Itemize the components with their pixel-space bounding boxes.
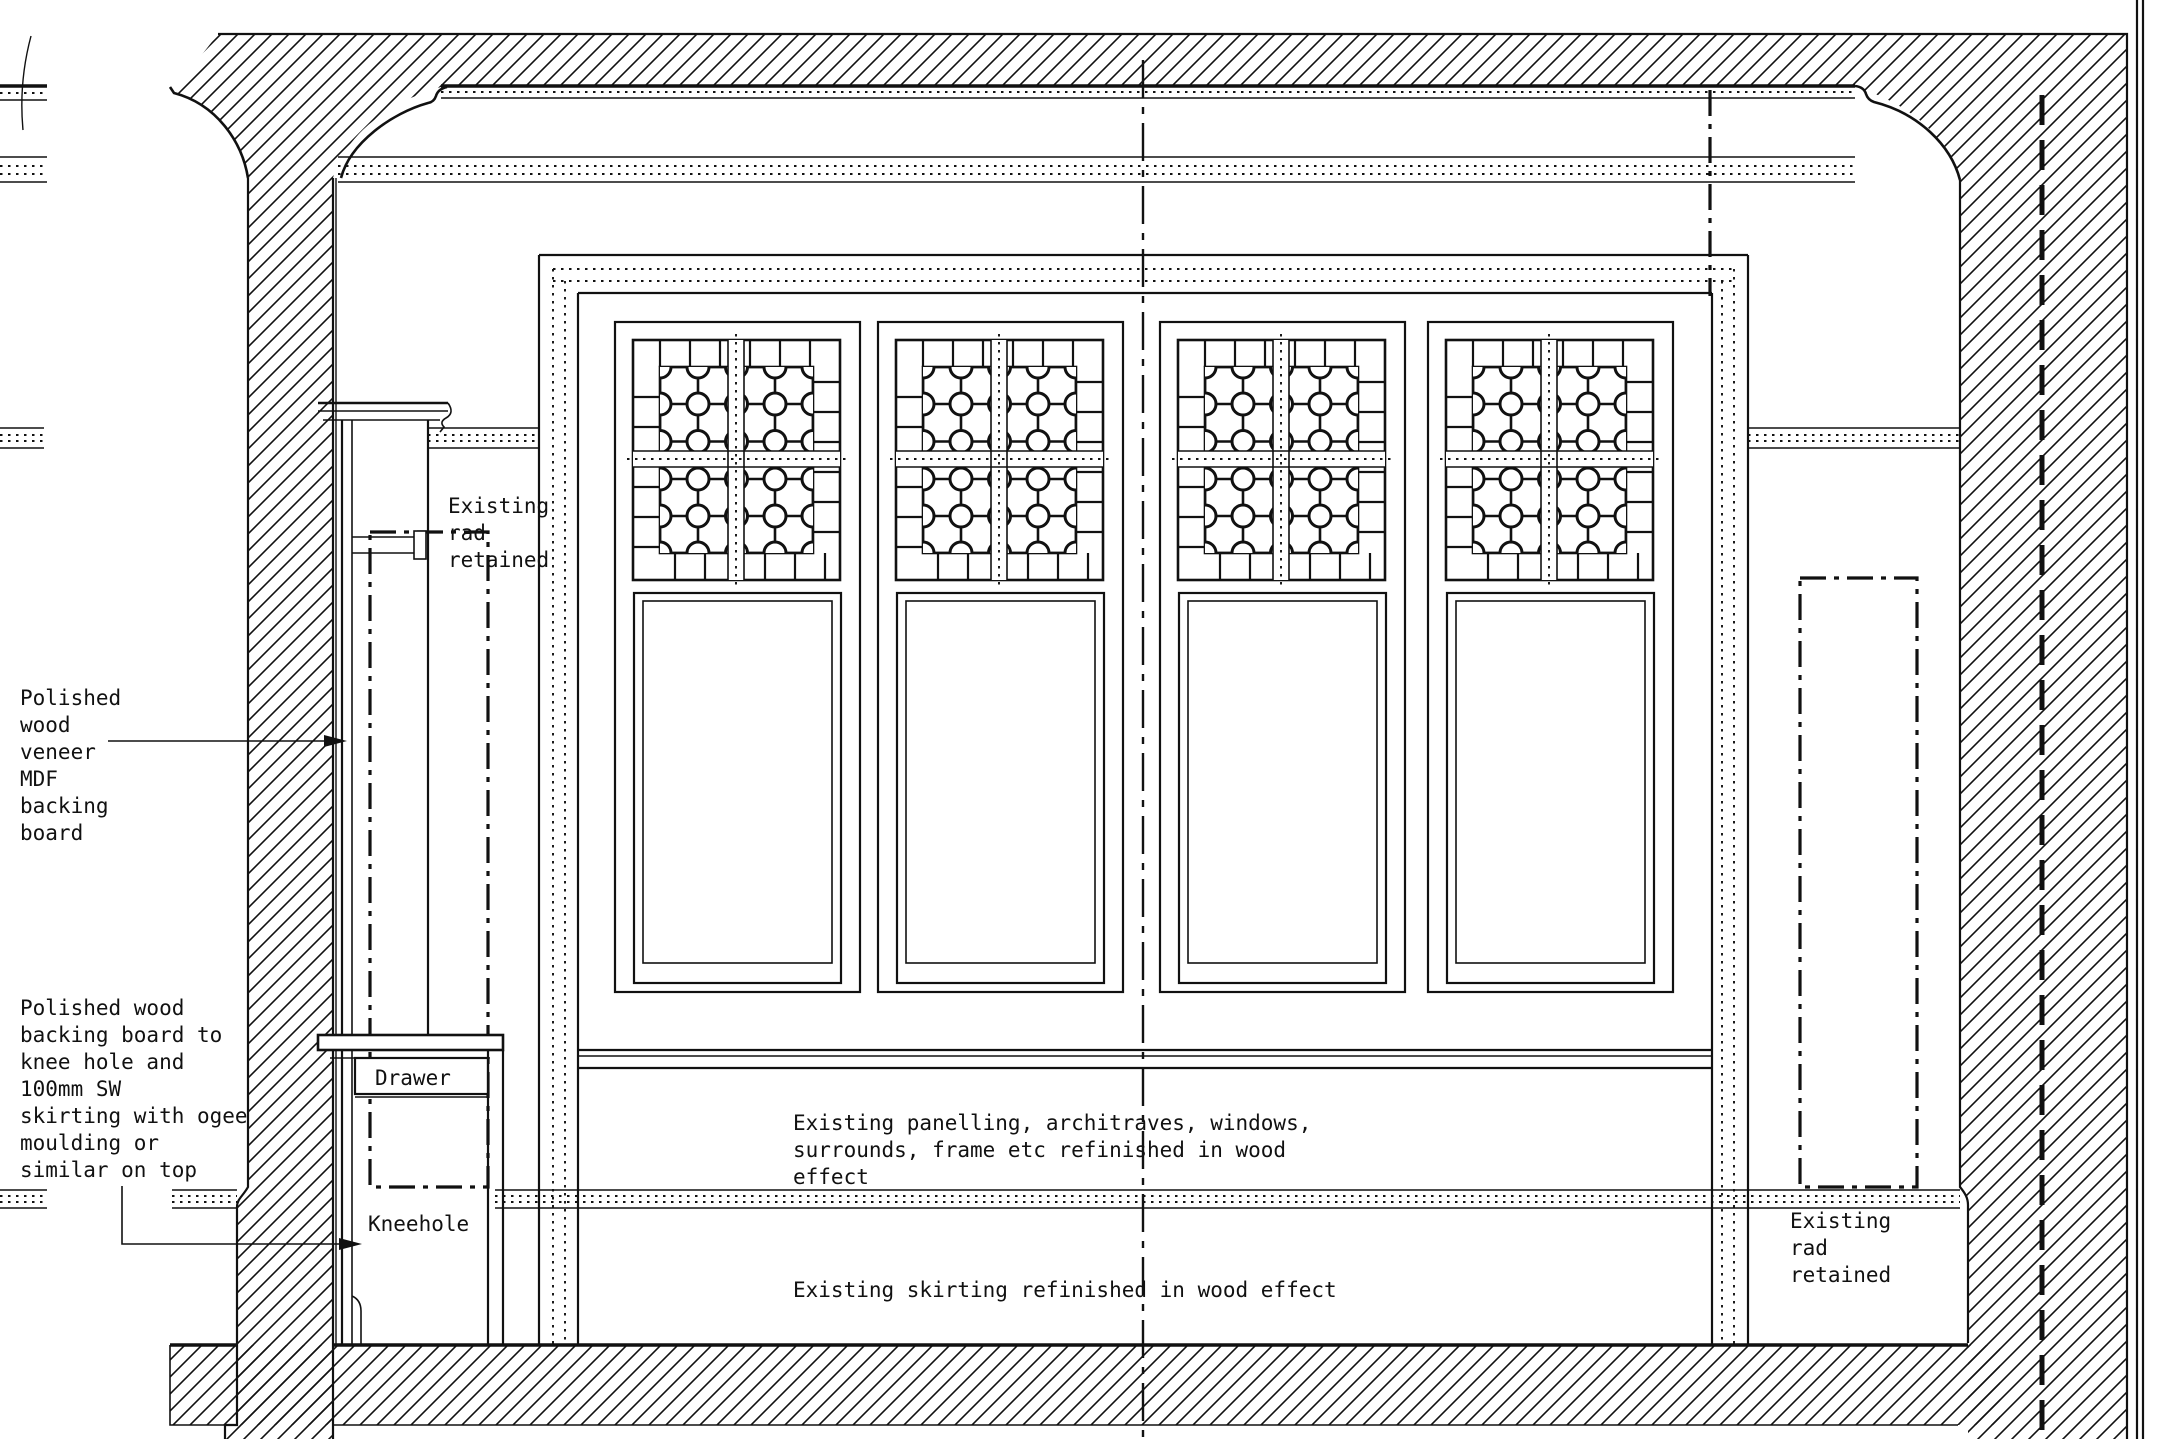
label-veneer-line5: backing [20, 794, 109, 818]
desk-side-panel [488, 1050, 503, 1345]
label-backing-line3: knee hole and [20, 1050, 184, 1074]
radiator-right-outline [1800, 578, 1917, 1187]
label-veneer-line2: wood [20, 713, 71, 737]
label-veneer-line1: Polished [20, 686, 121, 710]
label-panelling-line3: effect [793, 1165, 869, 1189]
label-rad-left: Existing rad retained [448, 494, 549, 572]
drawing-canvas: Polished wood veneer MDF backing board P… [0, 0, 2171, 1439]
window-bay-2 [878, 322, 1123, 992]
label-panelling-line2: surrounds, frame etc refinished in wood [793, 1138, 1286, 1162]
label-veneer-line6: board [20, 821, 83, 845]
window-sill-rail [578, 1050, 1712, 1068]
label-backing-line6: moulding or [20, 1131, 159, 1155]
shelf [352, 537, 414, 553]
window-bay-3 [1160, 322, 1405, 992]
label-veneer-line4: MDF [20, 767, 58, 791]
base-moulding [352, 1296, 361, 1345]
label-panelling-line1: Existing panelling, architraves, windows… [793, 1111, 1311, 1135]
label-veneer: Polished wood veneer MDF backing board [20, 686, 121, 845]
label-panelling: Existing panelling, architraves, windows… [793, 1111, 1311, 1189]
label-rad-right-line3: retained [1790, 1263, 1891, 1287]
label-rad-right-line1: Existing [1790, 1209, 1891, 1233]
label-rad-right: Existing rad retained [1790, 1209, 1891, 1287]
label-backing-line4: 100mm SW [20, 1077, 122, 1101]
label-backing-line7: similar on top [20, 1158, 197, 1182]
label-rad-left-line3: retained [448, 548, 549, 572]
right-boundary-lines [2137, 0, 2143, 1439]
desk-top [318, 1035, 503, 1050]
label-backing-line1: Polished wood [20, 996, 184, 1020]
break-arc [22, 36, 31, 130]
frieze-rail [338, 157, 1855, 182]
label-kneehole: Kneehole [368, 1212, 469, 1236]
shelf-end [414, 531, 426, 559]
label-backing-line5: skirting with ogee [20, 1104, 248, 1128]
architectural-elevation-drawing: Polished wood veneer MDF backing board P… [0, 0, 2171, 1439]
label-rad-right-line2: rad [1790, 1236, 1828, 1260]
window-bay-4 [1428, 322, 1673, 992]
kneehole-arrowhead [339, 1238, 362, 1250]
label-skirting: Existing skirting refinished in wood eff… [793, 1278, 1337, 1302]
floor-slab-hatch [170, 1345, 2000, 1425]
label-rad-left-line2: rad [448, 521, 486, 545]
label-drawer: Drawer [375, 1066, 451, 1090]
window-bay-1 [615, 322, 860, 992]
label-veneer-line3: veneer [20, 740, 96, 764]
dado-rail [172, 1190, 1960, 1208]
label-rad-left-line1: Existing [448, 494, 549, 518]
label-backing-line2: backing board to [20, 1023, 222, 1047]
label-backing-board: Polished wood backing board to knee hole… [20, 996, 248, 1182]
